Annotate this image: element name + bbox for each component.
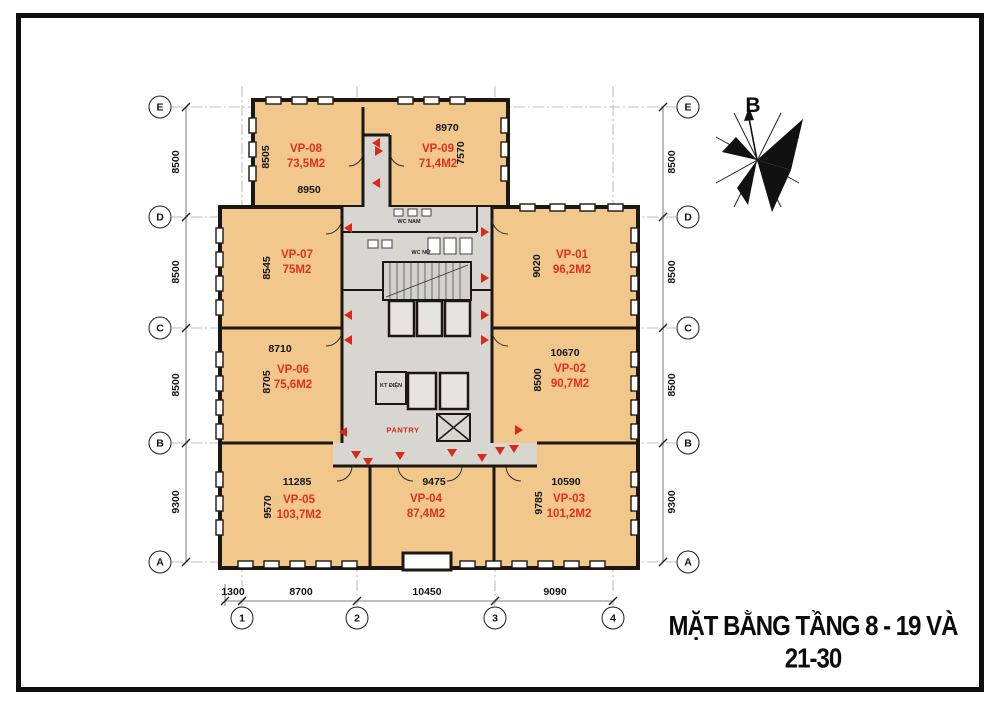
- dim-vp09-width: 8970: [435, 122, 458, 134]
- dim-vp06-height: 8705: [261, 370, 273, 393]
- room-area: 101,2M2: [547, 507, 592, 522]
- dim-vp05-height: 9570: [262, 495, 274, 518]
- dim-vp08-width: 8950: [297, 184, 320, 196]
- room-area: 75,6M2: [274, 378, 312, 393]
- room-id: VP-08: [287, 142, 325, 157]
- dim-right-e-d: 8500: [666, 150, 678, 173]
- room-label-vp-06: VP-06 75,6M2: [274, 363, 312, 393]
- dim-bottom-9090: 9090: [543, 586, 566, 598]
- grid-bubble-right-d: D: [677, 206, 700, 229]
- dim-vp01-height: 9020: [531, 254, 543, 277]
- pantry-label: PANTRY: [387, 426, 420, 435]
- grid-bubble-right-b: B: [677, 432, 700, 455]
- dim-vp07-height: 8545: [261, 256, 273, 279]
- dim-bottom-10450: 10450: [412, 586, 441, 598]
- grid-bubble-right-c: C: [677, 317, 700, 340]
- grid-bubble-left-e: E: [149, 96, 172, 119]
- dim-vp08-height: 8505: [260, 145, 272, 168]
- grid-bubble-left-d: D: [149, 206, 172, 229]
- floor-plan-page: E D C B A E D C B A 1 2 3 4 8500 8500 85…: [0, 0, 1000, 707]
- room-id: VP-05: [277, 493, 322, 508]
- room-area: 75M2: [281, 263, 313, 278]
- dim-right-c-b: 8500: [666, 373, 678, 396]
- dim-vp05-width: 11285: [283, 476, 312, 488]
- wc-nam-label: WC NAM: [397, 219, 420, 225]
- grid-bubble-col-1: 1: [231, 607, 254, 630]
- room-label-vp-01: VP-01 96,2M2: [553, 248, 591, 278]
- room-label-vp-05: VP-05 103,7M2: [277, 493, 322, 523]
- room-area: 73,5M2: [287, 157, 325, 172]
- grid-bubble-col-4: 4: [602, 607, 625, 630]
- dim-vp06-width: 8710: [268, 343, 291, 355]
- page-title: MẶT BẰNG TẦNG 8 - 19 VÀ 21-30: [652, 611, 974, 675]
- room-id: VP-03: [547, 492, 592, 507]
- grid-bubble-left-c: C: [149, 317, 172, 340]
- dim-right-b-a: 9300: [666, 490, 678, 513]
- room-label-vp-03: VP-03 101,2M2: [547, 492, 592, 522]
- dim-vp03-height: 9785: [533, 491, 545, 514]
- dim-vp09-height: 7570: [455, 141, 467, 164]
- dim-bottom-1300: 1300: [221, 586, 244, 598]
- dim-left-b-a: 9300: [170, 490, 182, 513]
- room-id: VP-01: [553, 248, 591, 263]
- room-label-vp-07: VP-07 75M2: [281, 248, 313, 278]
- grid-bubble-left-b: B: [149, 432, 172, 455]
- dim-vp02-height: 8500: [532, 368, 544, 391]
- room-id: VP-07: [281, 248, 313, 263]
- dim-vp03-width: 10590: [551, 476, 580, 488]
- room-label-vp-04: VP-04 87,4M2: [407, 492, 445, 522]
- room-area: 71,4M2: [419, 157, 457, 172]
- kt-dien-label: KT ĐIỆN: [380, 383, 402, 389]
- wc-nu-label: WC NỮ: [411, 250, 430, 256]
- room-id: VP-04: [407, 492, 445, 507]
- grid-bubble-col-3: 3: [484, 607, 507, 630]
- room-id: VP-06: [274, 363, 312, 378]
- grid-bubble-col-2: 2: [346, 607, 369, 630]
- dim-left-d-c: 8500: [170, 260, 182, 283]
- room-label-vp-08: VP-08 73,5M2: [287, 142, 325, 172]
- north-label: B: [745, 94, 760, 118]
- grid-bubble-right-a: A: [677, 551, 700, 574]
- grid-bubble-left-a: A: [149, 551, 172, 574]
- dim-right-d-c: 8500: [666, 260, 678, 283]
- room-area: 90,7M2: [551, 377, 589, 392]
- grid-bubble-right-e: E: [677, 96, 700, 119]
- room-label-vp-09: VP-09 71,4M2: [419, 142, 457, 172]
- dim-left-e-d: 8500: [170, 150, 182, 173]
- compass-rose-icon: [716, 107, 803, 212]
- room-area: 96,2M2: [553, 263, 591, 278]
- dim-vp02-width: 10670: [550, 347, 579, 359]
- room-id: VP-09: [419, 142, 457, 157]
- dim-vp04-width: 9475: [422, 476, 445, 488]
- dim-left-c-b: 8500: [170, 373, 182, 396]
- room-area: 103,7M2: [277, 508, 322, 523]
- room-label-vp-02: VP-02 90,7M2: [551, 362, 589, 392]
- room-area: 87,4M2: [407, 507, 445, 522]
- room-id: VP-02: [551, 362, 589, 377]
- dim-bottom-8700: 8700: [289, 586, 312, 598]
